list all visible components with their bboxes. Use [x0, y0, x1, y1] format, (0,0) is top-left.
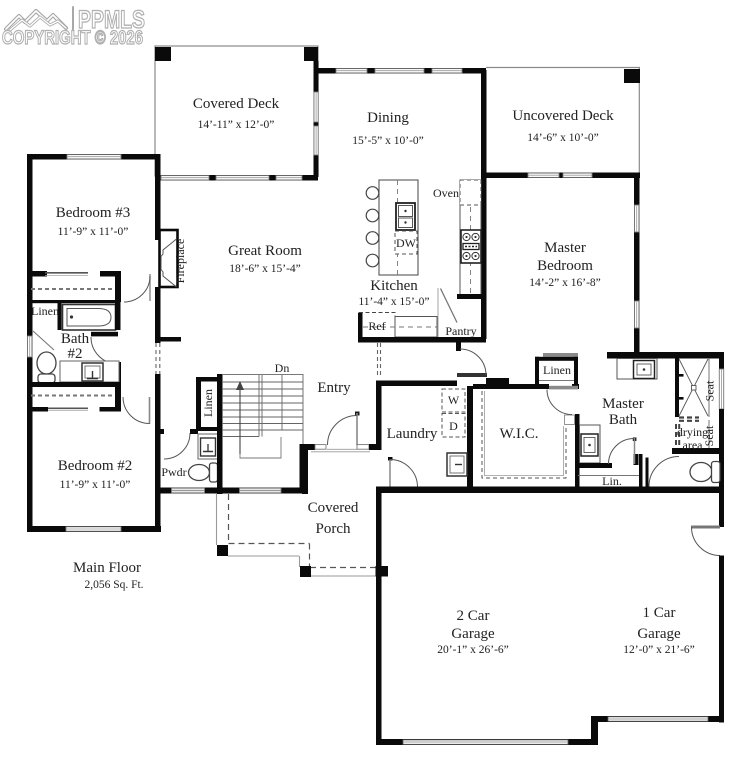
svg-text:15’-5” x 10’-0”: 15’-5” x 10’-0”	[352, 135, 424, 147]
svg-text:Linen: Linen	[201, 389, 215, 417]
svg-text:18’-6” x 15’-4”: 18’-6” x 15’-4”	[229, 263, 301, 275]
svg-text:1 Car: 1 Car	[643, 605, 676, 621]
svg-text:14’-2” x 16’-8”: 14’-2” x 16’-8”	[529, 277, 601, 289]
svg-text:Covered Deck: Covered Deck	[193, 96, 280, 112]
svg-text:Linen: Linen	[31, 304, 59, 318]
svg-text:Garage: Garage	[637, 626, 681, 642]
svg-text:Lin.: Lin.	[602, 474, 622, 488]
svg-text:Porch: Porch	[316, 521, 351, 537]
svg-text:Kitchen: Kitchen	[370, 278, 418, 294]
svg-text:Oven: Oven	[433, 186, 459, 200]
svg-text:Linen: Linen	[543, 363, 571, 377]
svg-text:Dn: Dn	[275, 361, 290, 375]
svg-text:Covered: Covered	[308, 500, 359, 516]
svg-text:14’-6” x 10’-0”: 14’-6” x 10’-0”	[527, 132, 599, 144]
svg-text:Seat: Seat	[703, 380, 717, 401]
svg-text:D: D	[449, 419, 458, 433]
svg-text:Garage: Garage	[451, 626, 495, 642]
svg-text:Uncovered Deck: Uncovered Deck	[512, 108, 614, 124]
svg-text:Master: Master	[544, 240, 586, 256]
svg-text:14’-11” x 12’-0”: 14’-11” x 12’-0”	[198, 119, 275, 131]
svg-text:11’-9” x 11’-0”: 11’-9” x 11’-0”	[60, 479, 131, 491]
svg-text:20’-1” x 26’-6”: 20’-1” x 26’-6”	[437, 644, 509, 656]
svg-text:DW: DW	[396, 236, 417, 250]
svg-text:Seat: Seat	[702, 425, 716, 446]
svg-text:W.I.C.: W.I.C.	[499, 426, 538, 442]
svg-text:2 Car: 2 Car	[457, 608, 490, 624]
svg-text:Great Room: Great Room	[228, 243, 302, 259]
svg-text:#2: #2	[68, 346, 83, 362]
svg-text:Bedroom: Bedroom	[537, 258, 593, 274]
svg-text:Bath: Bath	[61, 331, 90, 347]
svg-text:Ref: Ref	[368, 319, 385, 333]
svg-text:area: area	[683, 438, 704, 452]
svg-text:W: W	[448, 393, 460, 407]
svg-text:2,056 Sq. Ft.: 2,056 Sq. Ft.	[84, 579, 143, 591]
svg-text:11’-9” x 11’-0”: 11’-9” x 11’-0”	[58, 226, 129, 238]
svg-text:Bedroom #2: Bedroom #2	[58, 458, 133, 474]
svg-text:Laundry: Laundry	[387, 426, 438, 442]
svg-text:Main Floor: Main Floor	[73, 560, 141, 576]
svg-text:12’-0” x 21’-6”: 12’-0” x 21’-6”	[623, 644, 695, 656]
svg-text:Bedroom #3: Bedroom #3	[56, 205, 131, 221]
svg-text:Dining: Dining	[367, 110, 409, 126]
svg-text:Bath: Bath	[609, 412, 638, 428]
svg-text:Pantry: Pantry	[445, 324, 476, 338]
svg-text:COPYRIGHT © 2026: COPYRIGHT © 2026	[2, 28, 143, 49]
svg-text:Master: Master	[602, 396, 644, 412]
svg-text:Entry: Entry	[317, 380, 351, 396]
svg-text:11’-4” x 15’-0”: 11’-4” x 15’-0”	[358, 296, 429, 308]
svg-text:Fireplace: Fireplace	[173, 239, 187, 284]
svg-text:Pwdr: Pwdr	[161, 465, 186, 479]
